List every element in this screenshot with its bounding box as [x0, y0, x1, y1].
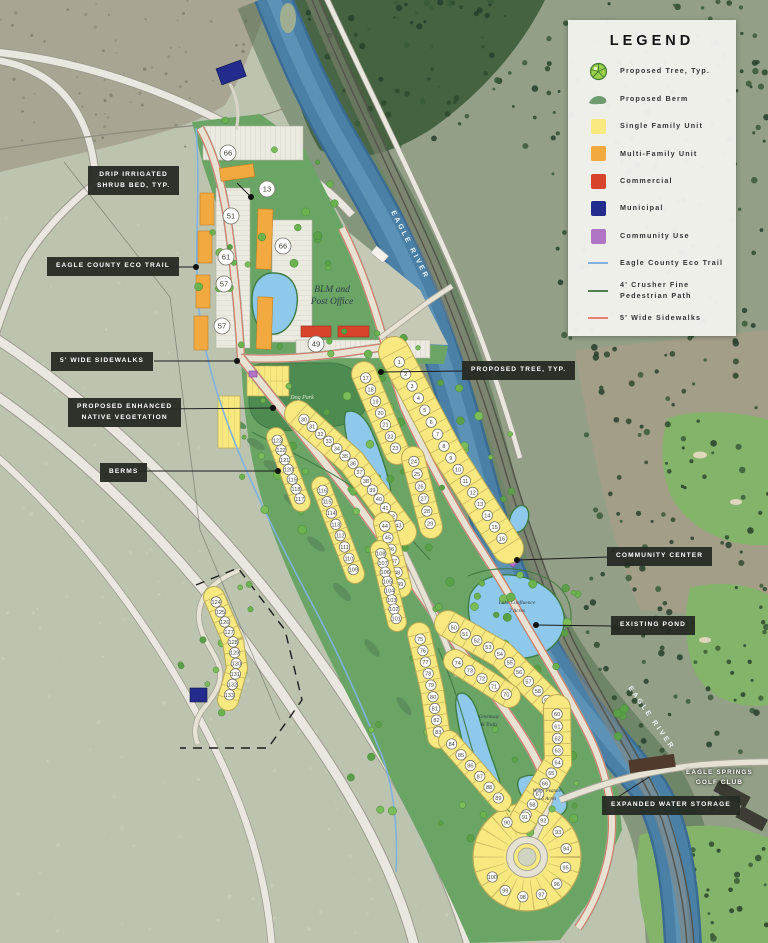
site-plan: 1234567891011121314151617181920212223242…	[0, 0, 768, 943]
legend-label: 5' Wide Sidewalks	[620, 313, 701, 323]
legend-item: Single Family Unit	[568, 113, 736, 140]
lot-number: 15	[491, 525, 497, 531]
lot-number: 112	[336, 534, 345, 540]
lot-number: 70	[503, 692, 509, 698]
lot-number: 95	[563, 865, 569, 871]
lot-number: 90	[504, 820, 510, 826]
legend-label: Proposed Berm	[620, 94, 688, 104]
tree-icon	[580, 62, 616, 81]
lot-number: 84	[448, 742, 454, 748]
color-swatch-icon	[580, 146, 616, 161]
lot-number: 93	[555, 830, 561, 836]
lot-number: 85	[458, 753, 464, 759]
lot-number: 35	[342, 454, 348, 460]
lot-number: 37	[356, 470, 362, 476]
lot-number: 34	[334, 447, 340, 453]
lot-number: 50	[451, 625, 457, 631]
greenway-label: & Trails	[481, 723, 498, 728]
legend-label: Municipal	[620, 203, 664, 213]
legend-item: Multi-Family Unit	[568, 140, 736, 167]
lot-number: 40	[376, 497, 382, 503]
lot-number: 29	[427, 522, 433, 528]
lot-number: 131	[231, 672, 240, 678]
lake-label: Lake Confluence	[498, 599, 536, 606]
lot-number: 13	[477, 502, 483, 508]
lot-number: 14	[484, 513, 490, 519]
lot-number: 102	[389, 607, 398, 613]
river-island	[280, 3, 296, 33]
lot-number: 32	[317, 432, 323, 438]
lot-number: 9	[449, 456, 452, 462]
lot-number: 132	[228, 682, 237, 688]
lot-number: 113	[331, 522, 340, 528]
legend-label: Commercial	[620, 176, 673, 186]
lot-number: 97	[538, 892, 544, 898]
unit-count: 51	[227, 212, 235, 221]
lot-number: 54	[497, 652, 503, 658]
lot-number: 63	[555, 749, 561, 755]
unit-count: 49	[312, 340, 320, 349]
lot-number: 1	[398, 360, 401, 366]
lot-number: 55	[507, 661, 513, 667]
color-swatch-icon	[580, 119, 616, 134]
lot-number: 8	[442, 444, 445, 450]
legend-items: Proposed Tree, Typ.Proposed BermSingle F…	[568, 58, 736, 332]
lot-number: 39	[369, 488, 375, 494]
lot-number: 23	[392, 446, 398, 452]
berm-icon	[580, 91, 616, 107]
unit-count: 66	[279, 242, 287, 251]
sand-bunker	[699, 637, 711, 643]
lot-number: 87	[477, 774, 483, 780]
lot-number: 6	[430, 420, 433, 426]
blm-label: Post Office	[310, 296, 353, 307]
lot-number: 124	[211, 600, 220, 606]
lot-number: 51	[462, 632, 468, 638]
lot-number: 115	[323, 500, 332, 506]
legend-item: 4' Crusher Fine Pedestrian Path	[568, 277, 736, 304]
lot-number: 19	[372, 399, 378, 405]
lot-number: 130	[232, 661, 241, 667]
lot-number: 66	[542, 782, 548, 788]
legend-title: LEGEND	[568, 33, 736, 49]
lot-number: 10	[455, 467, 461, 473]
sand-bunker	[730, 499, 742, 505]
lot-number: 123	[273, 438, 282, 444]
legend-label: Community Use	[620, 231, 690, 241]
water-feature-label: Water Feature	[533, 789, 562, 794]
legend-label: 4' Crusher Fine Pedestrian Path	[620, 280, 732, 301]
lot-number: 101	[391, 616, 400, 622]
lot-number: 119	[288, 477, 297, 483]
lot-number: 5	[423, 408, 426, 414]
lot-number: 106	[381, 570, 390, 576]
unit-count: 61	[222, 253, 230, 262]
lot-number: 133	[225, 693, 234, 699]
lot-number: 100	[488, 875, 497, 881]
lot-number: 31	[309, 425, 315, 431]
unit-count: 66	[224, 149, 232, 158]
lot-number: 86	[467, 764, 473, 770]
blm-label: BLM and	[314, 285, 350, 295]
lot-number: 82	[433, 718, 439, 724]
lot-number: 108	[376, 552, 385, 558]
lot-number: 3	[411, 384, 414, 390]
lot-number: 56	[516, 670, 522, 676]
lot-number: 76	[420, 649, 426, 655]
lot-number: 79	[428, 683, 434, 689]
line-icon	[580, 290, 616, 292]
lot-number: 89	[495, 796, 501, 802]
legend-label: Multi-Family Unit	[620, 149, 697, 159]
lot-number: 121	[280, 458, 289, 464]
lot-number: 78	[425, 672, 431, 678]
lot-number: 28	[424, 509, 430, 515]
lot-number: 109	[349, 568, 358, 574]
lot-number: 88	[486, 785, 492, 791]
lot-number: 62	[554, 736, 560, 742]
lot-number: 45	[385, 536, 391, 542]
lot-number: 38	[363, 479, 369, 485]
lot-number: 107	[378, 561, 387, 567]
lot-number: 98	[520, 895, 526, 901]
lot-number: 53	[485, 645, 491, 651]
lot-number: 81	[432, 706, 438, 712]
legend-label: Single Family Unit	[620, 121, 703, 131]
lot-number: 77	[422, 660, 428, 666]
lot-number: 58	[535, 689, 541, 695]
lot-number: 117	[295, 497, 304, 503]
lot-number: 25	[414, 472, 420, 478]
lot-number: 4	[417, 396, 420, 402]
lot-number: 118	[292, 487, 301, 493]
color-swatch-icon	[580, 229, 616, 244]
lot-number: 122	[276, 448, 285, 454]
legend-item: Proposed Berm	[568, 85, 736, 112]
legend-label: Eagle County Eco Trail	[620, 258, 723, 268]
lot-number: 71	[491, 684, 497, 690]
lot-number: 22	[387, 434, 393, 440]
lot-number: 125	[216, 610, 225, 616]
lot-number: 75	[417, 637, 423, 643]
legend-item: Commercial	[568, 168, 736, 195]
sand-bunker	[693, 452, 707, 459]
lot-number: 7	[436, 432, 439, 438]
lot-number: 57	[525, 679, 531, 685]
lot-number: 27	[421, 497, 427, 503]
color-swatch-icon	[580, 201, 616, 216]
lot-number: 127	[224, 630, 233, 636]
lot-number: 128	[228, 640, 237, 646]
line-icon	[580, 317, 616, 319]
unit-count: 57	[218, 322, 226, 331]
legend-panel: LEGEND Proposed Tree, Typ.Proposed BermS…	[568, 20, 736, 336]
lot-number: 18	[367, 388, 373, 394]
dog-park-label: Dog Park	[289, 395, 314, 401]
lot-number: 116	[318, 488, 327, 494]
line-icon	[580, 262, 616, 264]
lot-number: 91	[522, 815, 528, 821]
legend-item: Municipal	[568, 195, 736, 222]
legend-item: Community Use	[568, 222, 736, 249]
lot-number: 114	[327, 511, 336, 517]
lot-number: 20	[377, 411, 383, 417]
lot-number: 103	[387, 598, 396, 604]
lot-number: 2	[404, 372, 407, 378]
lot-number: 61	[554, 724, 560, 730]
lot-number: 33	[325, 439, 331, 445]
lot-number: 41	[382, 506, 388, 512]
lot-number: 11	[462, 479, 468, 485]
water-feature-label: 1.5 Acres	[538, 797, 557, 802]
lot-number: 99	[502, 889, 508, 895]
legend-item: Proposed Tree, Typ.	[568, 58, 736, 85]
lot-number: 92	[540, 818, 546, 824]
lot-number: 24	[411, 459, 417, 465]
lot-number: 111	[340, 545, 349, 551]
legend-label: Proposed Tree, Typ.	[620, 66, 710, 76]
lot-number: 94	[563, 847, 569, 853]
lot-number: 60	[554, 712, 560, 718]
lot-number: 30	[301, 417, 307, 423]
lot-number: 16	[499, 536, 505, 542]
lot-number: 104	[385, 589, 394, 595]
lot-number: 72	[479, 677, 485, 683]
lot-number: 74	[455, 661, 461, 667]
lot-number: 105	[383, 579, 392, 585]
lot-number: 129	[230, 651, 239, 657]
color-swatch-icon	[580, 174, 616, 189]
lot-number: 73	[467, 669, 473, 675]
lot-number: 12	[470, 490, 476, 496]
legend-item: Eagle County Eco Trail	[568, 250, 736, 277]
lot-number: 52	[474, 639, 480, 645]
lot-number: 26	[417, 484, 423, 490]
unit-count: 13	[263, 185, 271, 194]
unit-count: 57	[220, 280, 228, 289]
lot-number: 36	[350, 461, 356, 467]
lot-number: 120	[284, 468, 293, 474]
lot-number: 21	[382, 423, 388, 429]
lot-number: 96	[554, 882, 560, 888]
legend-item: 5' Wide Sidewalks	[568, 305, 736, 332]
lot-number: 110	[344, 556, 353, 562]
greenway-label: Greenway	[479, 715, 500, 720]
lot-number: 126	[220, 620, 229, 626]
lot-number: 65	[548, 771, 554, 777]
lot-number: 64	[554, 761, 560, 767]
lot-number: 68	[529, 802, 535, 808]
lot-number: 44	[382, 524, 388, 530]
lot-number: 80	[430, 695, 436, 701]
lot-number: 17	[363, 376, 369, 382]
lake-label: 2 Acres	[509, 608, 525, 614]
